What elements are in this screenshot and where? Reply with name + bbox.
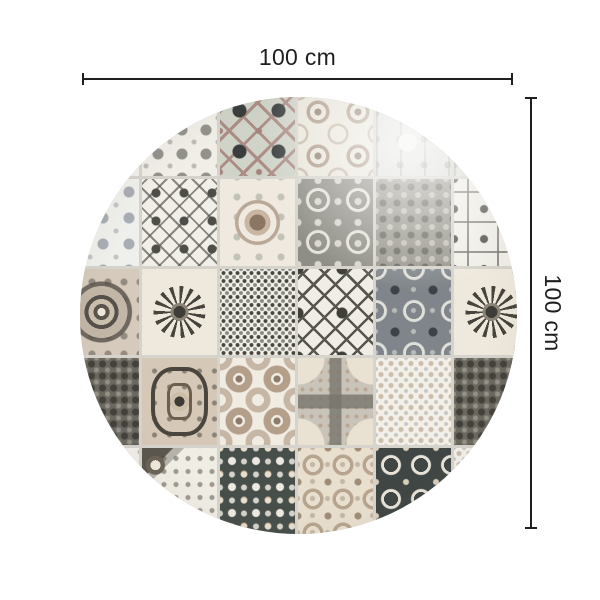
width-dimension-line	[82, 78, 513, 80]
rug-tile-curved-frame	[142, 358, 217, 444]
rug-tile-botanical-dark	[454, 358, 517, 444]
rug-tile-lace-white	[376, 358, 451, 444]
rug-tile-circle-cross	[298, 358, 373, 444]
width-dimension-label: 100 cm	[82, 44, 513, 71]
rug-tile-lace-gray	[80, 448, 139, 534]
rug-tile-octagon	[454, 179, 517, 265]
rug-tile-lace-blue	[80, 179, 139, 265]
white-disc-highlight	[398, 133, 417, 152]
round-rug-product-image	[80, 97, 517, 534]
rug-tile-damask-cream	[298, 448, 373, 534]
rug-tile-sage-floret	[220, 97, 295, 176]
rug-tile-ornate-squares-blue	[376, 269, 451, 355]
rug-tile-lace-white	[454, 448, 517, 534]
height-dimension-label: 100 cm	[539, 274, 566, 351]
height-dimension: 100 cm	[530, 97, 560, 529]
rug-tile-sunflower	[454, 269, 517, 355]
rug-tile-rings-dark	[376, 448, 451, 534]
rug-tile-x-lattice	[298, 269, 373, 355]
rug-tile-arch-light	[454, 97, 517, 176]
width-dimension: 100 cm	[82, 44, 513, 80]
rug-tile-star-dark	[220, 448, 295, 534]
rug-tile-floral-circles	[298, 179, 373, 265]
rug-tile-lace-blue	[80, 97, 139, 176]
rug-tile-dot-flowers	[220, 358, 295, 444]
rug-tile-medallion-dark	[80, 269, 139, 355]
rug-tile-scroll-medallion	[220, 179, 295, 265]
tile-grid	[80, 97, 517, 534]
rug-tile-sunflower	[142, 269, 217, 355]
rug-tile-floral-garland	[298, 97, 373, 176]
rug-tile-squares	[142, 179, 217, 265]
rug-tile-damask-dense	[376, 179, 451, 265]
rug-tile-botanical-dark	[80, 358, 139, 444]
rug-tile-lace-gray	[142, 97, 217, 176]
product-dimension-diagram: 100 cm 100 cm	[0, 0, 600, 600]
height-dimension-line	[530, 97, 532, 529]
rug-tile-scrollwork	[220, 269, 295, 355]
rug-tile-corner-flower	[142, 448, 217, 534]
